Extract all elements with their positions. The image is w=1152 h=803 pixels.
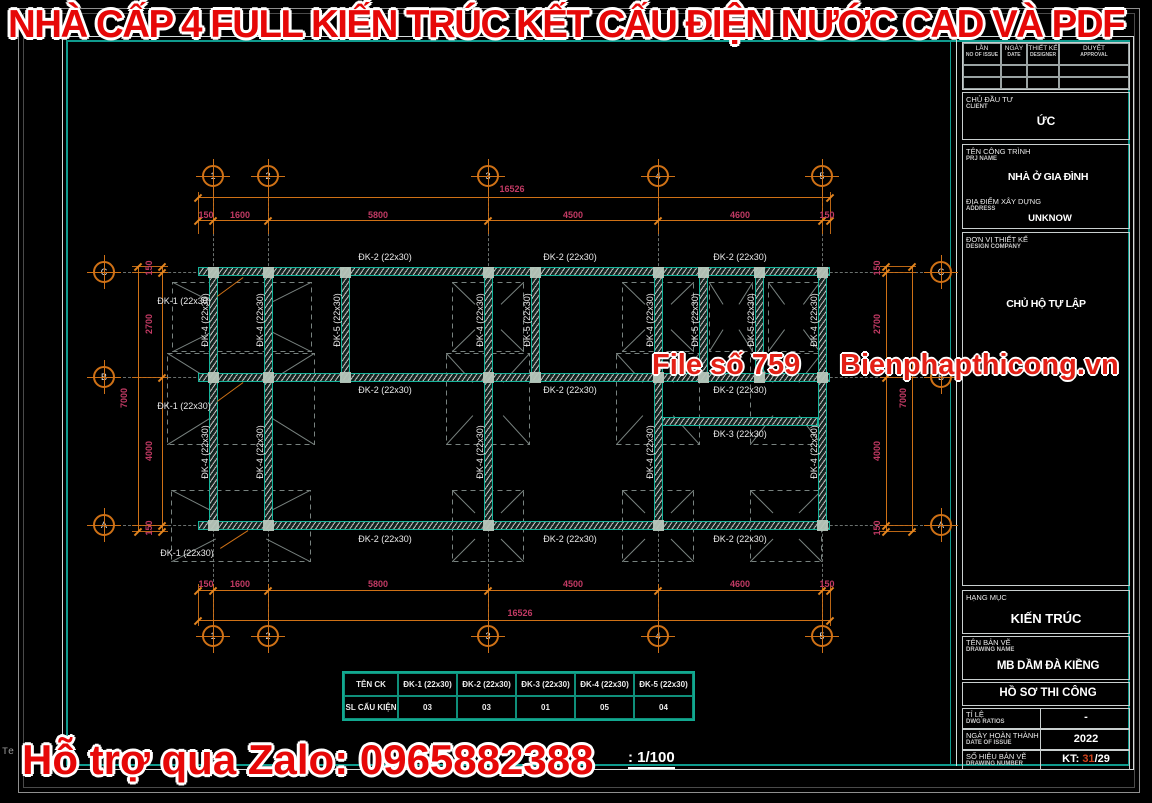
bubble-crosshair bbox=[104, 360, 105, 394]
beam-horizontal bbox=[662, 417, 818, 426]
grid-bubble: 5 bbox=[811, 625, 833, 647]
dim-text: 150 bbox=[198, 210, 213, 220]
schedule-header-beam: ĐK-2 (22x30) bbox=[457, 673, 516, 696]
dim-text: 1600 bbox=[230, 579, 250, 589]
dim-text: 150 bbox=[144, 520, 154, 535]
grid-bubble: 2 bbox=[257, 165, 279, 187]
beam-label: ĐK-2 (22x30) bbox=[543, 385, 597, 395]
column-square bbox=[653, 267, 664, 278]
beam-label: ĐK-2 (22x30) bbox=[543, 534, 597, 544]
component-schedule-table: TÊN CKĐK-1 (22x30)ĐK-2 (22x30)ĐK-3 (22x3… bbox=[342, 671, 695, 721]
column-square bbox=[530, 267, 541, 278]
dim-line-bottom-total bbox=[198, 620, 830, 621]
column-square bbox=[263, 520, 274, 531]
dim-text: 150 bbox=[872, 260, 882, 275]
beam-label-vertical: ĐK-4 (22x30) bbox=[645, 425, 655, 479]
dim-text: 1600 bbox=[230, 210, 250, 220]
bubble-crosshair bbox=[213, 159, 214, 193]
beam-label-vertical: ĐK-4 (22x30) bbox=[645, 293, 655, 347]
bubble-crosshair bbox=[822, 159, 823, 193]
project-box bbox=[962, 144, 1130, 229]
beam-label-leadered: ĐK-1 (22x30) bbox=[160, 548, 214, 558]
schedule-quantity: 04 bbox=[634, 696, 693, 719]
revision-empty-cell bbox=[1027, 65, 1059, 77]
phase-box bbox=[962, 682, 1130, 706]
ratio-box bbox=[962, 708, 1130, 729]
grid-bubble: 2 bbox=[257, 625, 279, 647]
beam-label-vertical: ĐK-4 (22x30) bbox=[255, 293, 265, 347]
beam-label: ĐK-2 (22x30) bbox=[713, 534, 767, 544]
bubble-crosshair bbox=[822, 619, 823, 653]
bubble-crosshair bbox=[104, 255, 105, 289]
revision-empty-cell bbox=[963, 77, 1001, 89]
dim-line-right-total bbox=[912, 266, 913, 531]
top-ad-banner: NHÀ CẤP 4 FULL KIẾN TRÚC KẾT CẤU ĐIỆN NƯ… bbox=[8, 3, 1124, 47]
schedule-quantity: 05 bbox=[575, 696, 634, 719]
bubble-crosshair bbox=[268, 159, 269, 193]
schedule-header-beam: ĐK-4 (22x30) bbox=[575, 673, 634, 696]
dim-text: 4600 bbox=[730, 210, 750, 220]
beam-label-vertical: ĐK-4 (22x30) bbox=[200, 425, 210, 479]
beam-label-leadered: ĐK-1 (22x30) bbox=[157, 401, 211, 411]
dim-text: 5800 bbox=[368, 210, 388, 220]
column-square bbox=[263, 267, 274, 278]
grid-bubble: A bbox=[93, 514, 115, 536]
dim-text-total: 7000 bbox=[898, 388, 908, 408]
revision-empty-cell bbox=[1001, 65, 1027, 77]
dim-line-left-total bbox=[138, 266, 139, 531]
beam-label: ĐK-3 (22x30) bbox=[713, 429, 767, 439]
bubble-crosshair bbox=[941, 508, 942, 542]
dim-line-right-segments bbox=[886, 266, 887, 531]
column-square bbox=[754, 267, 765, 278]
grid-bubble: B bbox=[93, 366, 115, 388]
schedule-header-beam: ĐK-1 (22x30) bbox=[398, 673, 457, 696]
dim-text: 2700 bbox=[872, 314, 882, 334]
dim-text: 4500 bbox=[563, 579, 583, 589]
bubble-crosshair bbox=[658, 619, 659, 653]
beam-label-vertical: ĐK-4 (22x30) bbox=[475, 425, 485, 479]
schedule-quantity: 03 bbox=[398, 696, 457, 719]
number-box bbox=[962, 750, 1130, 770]
designer-box bbox=[962, 232, 1130, 586]
revision-empty-cell bbox=[1027, 77, 1059, 89]
dim-text: 150 bbox=[144, 260, 154, 275]
column-square bbox=[208, 267, 219, 278]
corner-text-fragment: Te bbox=[2, 747, 14, 758]
beam-label-leadered: ĐK-1 (22x30) bbox=[157, 296, 211, 306]
revision-empty-cell bbox=[1001, 77, 1027, 89]
beam-label: ĐK-2 (22x30) bbox=[543, 252, 597, 262]
schedule-header-beam: ĐK-5 (22x30) bbox=[634, 673, 693, 696]
column-square bbox=[483, 372, 494, 383]
bottom-zalo-banner: Hỗ trợ qua Zalo: 0965882388 bbox=[22, 736, 593, 784]
dim-text: 150 bbox=[872, 520, 882, 535]
beam-label: ĐK-2 (22x30) bbox=[358, 534, 412, 544]
extension-line bbox=[268, 192, 269, 234]
dim-text: 4500 bbox=[563, 210, 583, 220]
beam-label-vertical: ĐK-4 (22x30) bbox=[809, 425, 819, 479]
dim-line-top-total bbox=[198, 197, 830, 198]
bubble-crosshair bbox=[488, 159, 489, 193]
grid-bubble: 4 bbox=[647, 625, 669, 647]
column-square bbox=[698, 267, 709, 278]
revision-table: LẦNNO OF ISSUENGÀYDATETHIẾT KẾDESIGNERDU… bbox=[962, 42, 1130, 90]
beam-label-vertical: ĐK-5 (22x30) bbox=[746, 293, 756, 347]
column-square bbox=[817, 267, 828, 278]
column-square bbox=[340, 372, 351, 383]
schedule-header-beam: ĐK-3 (22x30) bbox=[516, 673, 575, 696]
beam-horizontal bbox=[198, 267, 830, 276]
column-square bbox=[817, 372, 828, 383]
grid-bubble: 3 bbox=[477, 625, 499, 647]
beam-label-vertical: ĐK-4 (22x30) bbox=[475, 293, 485, 347]
dim-text: 150 bbox=[819, 210, 834, 220]
grid-bubble: 5 bbox=[811, 165, 833, 187]
bubble-crosshair bbox=[268, 619, 269, 653]
grid-bubble: 1 bbox=[202, 165, 224, 187]
beam-label: ĐK-2 (22x30) bbox=[713, 385, 767, 395]
dim-text: 4000 bbox=[872, 441, 882, 461]
beam-label: ĐK-2 (22x30) bbox=[358, 385, 412, 395]
dim-text-total: 16526 bbox=[499, 184, 524, 194]
schedule-row-label: SL CẤU KIỆN bbox=[344, 696, 398, 719]
bubble-crosshair bbox=[488, 619, 489, 653]
column-square bbox=[530, 372, 541, 383]
grid-bubble: A bbox=[930, 514, 952, 536]
scale-note: : 1/100 bbox=[628, 749, 675, 769]
beam-horizontal bbox=[198, 521, 830, 530]
beam-label: ĐK-2 (22x30) bbox=[358, 252, 412, 262]
beam-label-vertical: ĐK-4 (22x30) bbox=[809, 293, 819, 347]
dim-text: 4600 bbox=[730, 579, 750, 589]
grid-bubble: 1 bbox=[202, 625, 224, 647]
bubble-crosshair bbox=[658, 159, 659, 193]
revision-empty-cell bbox=[1059, 65, 1129, 77]
titleblock-divider-2 bbox=[956, 40, 957, 766]
column-square bbox=[483, 267, 494, 278]
extension-line bbox=[488, 192, 489, 234]
schedule-header-name: TÊN CK bbox=[344, 673, 398, 696]
watermark-file-number: File số 759 bbox=[652, 349, 800, 382]
column-square bbox=[817, 520, 828, 531]
watermark-website: Bienphapthicong.vn bbox=[840, 349, 1119, 382]
column-square bbox=[208, 372, 219, 383]
beam-label-vertical: ĐK-5 (22x30) bbox=[332, 293, 342, 347]
client-box bbox=[962, 92, 1130, 140]
revision-empty-cell bbox=[963, 65, 1001, 77]
beam-label-vertical: ĐK-5 (22x30) bbox=[522, 293, 532, 347]
dim-line-top-segments bbox=[198, 220, 830, 221]
column-square bbox=[263, 372, 274, 383]
schedule-quantity: 03 bbox=[457, 696, 516, 719]
grid-bubble: C bbox=[930, 261, 952, 283]
column-square bbox=[208, 520, 219, 531]
beam-label: ĐK-2 (22x30) bbox=[713, 252, 767, 262]
grid-bubble: C bbox=[93, 261, 115, 283]
bubble-crosshair bbox=[104, 508, 105, 542]
extension-line bbox=[658, 192, 659, 234]
category-box bbox=[962, 590, 1130, 634]
dim-text: 5800 bbox=[368, 579, 388, 589]
revision-empty-cell bbox=[1059, 77, 1129, 89]
schedule-quantity: 01 bbox=[516, 696, 575, 719]
column-square bbox=[483, 520, 494, 531]
dim-text: 2700 bbox=[144, 314, 154, 334]
bubble-crosshair bbox=[941, 255, 942, 289]
date-box bbox=[962, 729, 1130, 750]
dim-text-total: 7000 bbox=[119, 388, 129, 408]
grid-bubble: 3 bbox=[477, 165, 499, 187]
dim-text: 4000 bbox=[144, 441, 154, 461]
dim-text-total: 16526 bbox=[507, 608, 532, 618]
beam-label-vertical: ĐK-4 (22x30) bbox=[255, 425, 265, 479]
bubble-crosshair bbox=[213, 619, 214, 653]
column-square bbox=[653, 520, 664, 531]
footing-outline bbox=[167, 353, 315, 445]
beam-label-vertical: ĐK-5 (22x30) bbox=[690, 293, 700, 347]
dim-text: 150 bbox=[198, 579, 213, 589]
dim-text: 150 bbox=[819, 579, 834, 589]
column-square bbox=[340, 267, 351, 278]
dim-line-bottom-segments bbox=[198, 590, 830, 591]
titleblock-divider-1 bbox=[950, 40, 951, 766]
footing-outline bbox=[172, 282, 312, 352]
drawing-name-box bbox=[962, 636, 1130, 680]
grid-bubble: 4 bbox=[647, 165, 669, 187]
